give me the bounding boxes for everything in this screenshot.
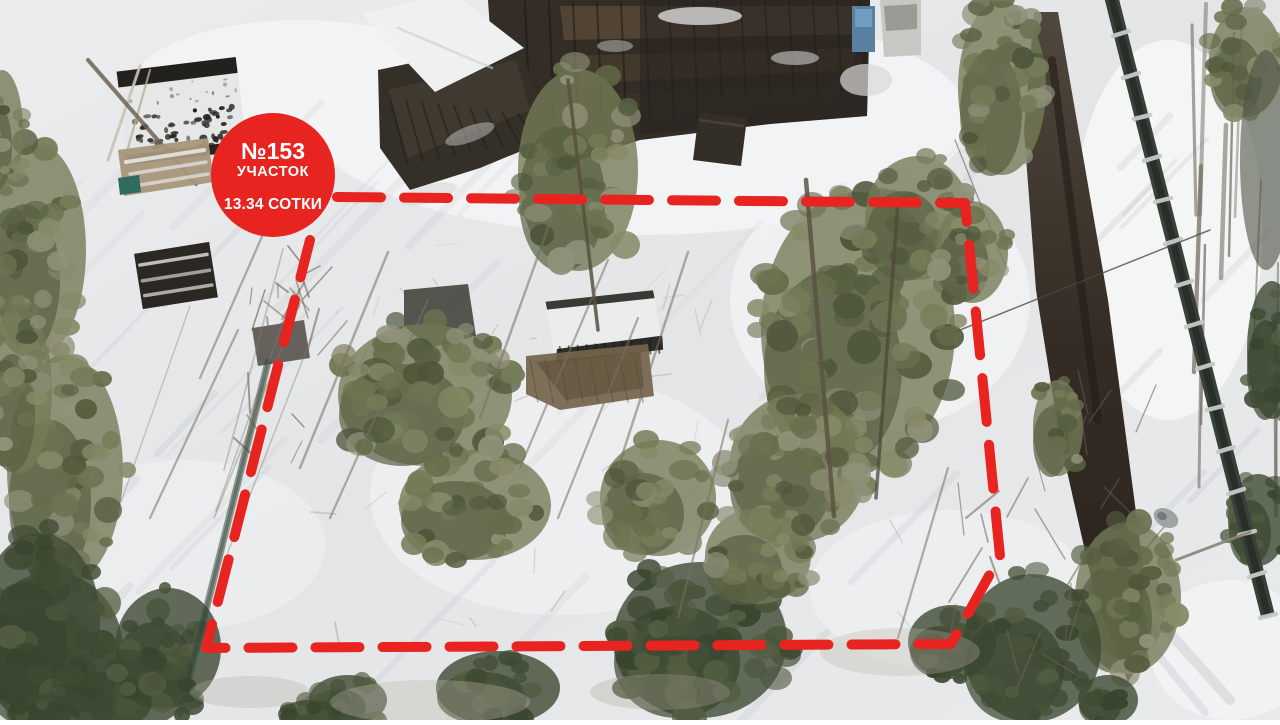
svg-text:13.34 СОТКИ: 13.34 СОТКИ	[224, 196, 322, 213]
svg-text:УЧАСТОК: УЧАСТОК	[237, 164, 309, 180]
svg-text:№153: №153	[241, 138, 305, 164]
